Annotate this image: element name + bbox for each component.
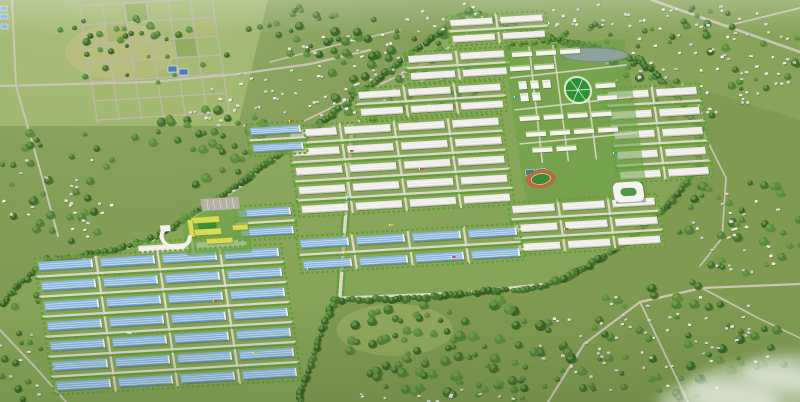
masterplan-aerial-render	[0, 0, 800, 402]
residential-layer	[503, 39, 651, 210]
aerial-render	[0, 0, 800, 402]
